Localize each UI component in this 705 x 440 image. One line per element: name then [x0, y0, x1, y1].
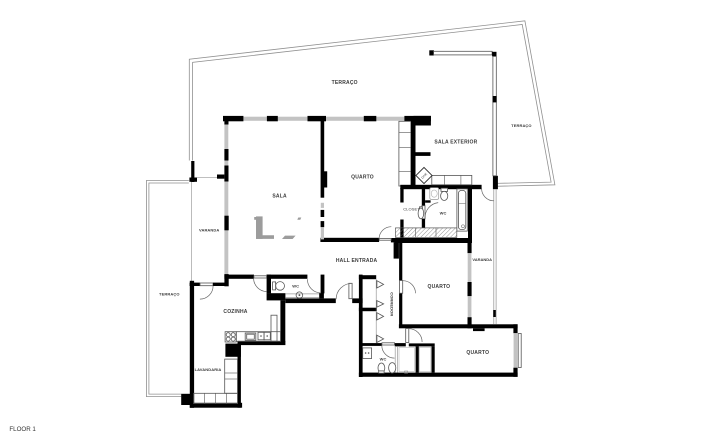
svg-text:SALA EXTERIOR: SALA EXTERIOR	[434, 140, 477, 146]
svg-text:WC: WC	[292, 284, 299, 289]
svg-text:COZINHA: COZINHA	[223, 309, 247, 315]
svg-text:QUARTO: QUARTO	[351, 174, 374, 180]
svg-text:VARANDA: VARANDA	[472, 257, 492, 262]
svg-text:SALA: SALA	[272, 194, 287, 200]
svg-text:TERRAÇO: TERRAÇO	[511, 123, 531, 128]
svg-text:QUARTO: QUARTO	[466, 350, 489, 356]
svg-text:VARANDA: VARANDA	[199, 228, 219, 233]
svg-text:WC: WC	[440, 211, 447, 216]
svg-text:LAVANDARIA: LAVANDARIA	[195, 367, 222, 372]
svg-text:TERRAÇO: TERRAÇO	[332, 80, 358, 86]
svg-text:CLOSET: CLOSET	[403, 207, 420, 212]
svg-text:HALL ENTRADA: HALL ENTRADA	[336, 258, 378, 264]
svg-text:WC: WC	[380, 356, 387, 361]
svg-text:CORREDOR: CORREDOR	[390, 292, 395, 316]
svg-text:TERRAÇO: TERRAÇO	[159, 291, 179, 296]
svg-text:QUARTO: QUARTO	[428, 284, 451, 290]
svg-text:FLOOR 1: FLOOR 1	[9, 426, 36, 433]
